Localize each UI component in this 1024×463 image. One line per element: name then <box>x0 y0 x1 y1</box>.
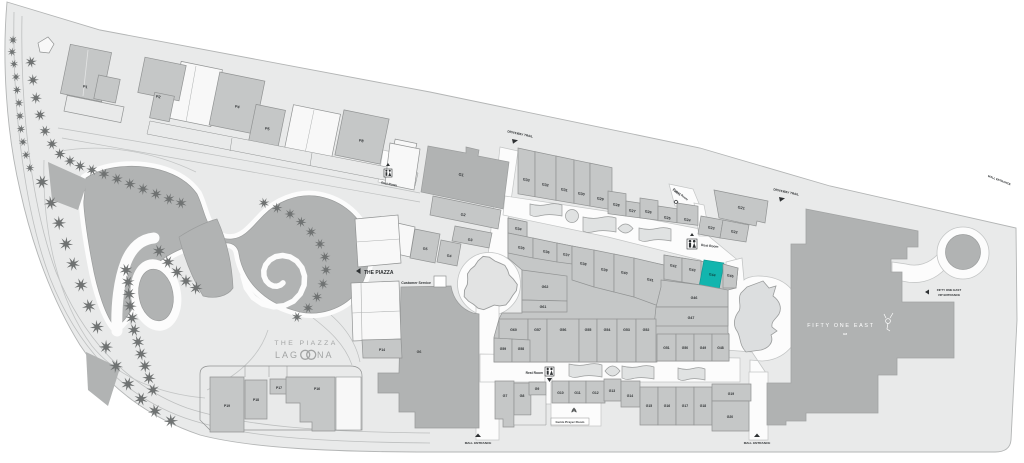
svg-text:G46: G46 <box>691 296 698 300</box>
svg-text:G19: G19 <box>728 392 735 396</box>
svg-text:THE PIAZZA: THE PIAZZA <box>364 270 394 276</box>
svg-text:G56: G56 <box>560 328 567 332</box>
svg-text:G48: G48 <box>717 346 724 350</box>
svg-text:G10: G10 <box>557 391 564 395</box>
svg-text:Gents Prayer Room: Gents Prayer Room <box>556 420 585 424</box>
svg-text:G9: G9 <box>535 387 540 391</box>
svg-text:LAG: LAG <box>275 350 299 360</box>
svg-text:FIFTY ONE EAST: FIFTY ONE EAST <box>937 288 962 292</box>
svg-text:G49: G49 <box>700 346 707 350</box>
svg-text:G60: G60 <box>510 328 517 332</box>
svg-text:FIFTY ONE EAST: FIFTY ONE EAST <box>807 323 874 329</box>
svg-text:G51: G51 <box>663 346 670 350</box>
svg-text:G5: G5 <box>422 247 427 252</box>
svg-text:G8: G8 <box>520 394 525 398</box>
svg-text:G52: G52 <box>643 328 650 332</box>
svg-text:G61: G61 <box>540 305 547 309</box>
svg-text:G14: G14 <box>627 394 634 398</box>
svg-text:G8: G8 <box>843 332 847 336</box>
svg-text:G13: G13 <box>609 389 616 393</box>
svg-text:G6: G6 <box>417 350 422 354</box>
svg-text:G12: G12 <box>592 391 599 395</box>
svg-text:G17: G17 <box>682 404 689 408</box>
svg-text:G15: G15 <box>646 404 653 408</box>
svg-text:G53: G53 <box>623 328 630 332</box>
svg-text:THE PIAZZA: THE PIAZZA <box>274 340 337 347</box>
svg-text:G3: G3 <box>467 238 472 243</box>
svg-text:Customer Service: Customer Service <box>401 281 431 285</box>
svg-text:G47: G47 <box>688 316 695 320</box>
svg-text:G11: G11 <box>574 391 580 395</box>
svg-text:G50: G50 <box>682 346 689 350</box>
svg-text:P18: P18 <box>253 398 259 402</box>
svg-text:P14: P14 <box>379 348 385 352</box>
svg-text:MALL ENTRANCE: MALL ENTRANCE <box>465 441 492 445</box>
svg-text:G7: G7 <box>503 394 508 398</box>
svg-text:G58: G58 <box>518 347 525 351</box>
svg-text:P19: P19 <box>224 404 230 408</box>
svg-text:NA: NA <box>317 350 334 360</box>
svg-text:G18: G18 <box>700 404 707 408</box>
svg-text:P16: P16 <box>314 387 320 391</box>
svg-text:G2: G2 <box>460 213 466 218</box>
svg-text:G57: G57 <box>534 328 541 332</box>
svg-text:G59: G59 <box>500 347 507 351</box>
svg-text:VIP ENTRANCE: VIP ENTRANCE <box>938 293 960 297</box>
svg-text:MALL ENTRANCE: MALL ENTRANCE <box>744 441 771 445</box>
svg-text:G4: G4 <box>446 254 451 259</box>
svg-text:G16: G16 <box>664 404 671 408</box>
svg-text:P17: P17 <box>276 386 282 390</box>
svg-text:Rest Room: Rest Room <box>526 371 543 375</box>
svg-text:G55: G55 <box>585 328 592 332</box>
svg-text:G62: G62 <box>542 285 549 289</box>
svg-text:MALL ENTRANCE: MALL ENTRANCE <box>987 174 1011 186</box>
svg-text:G54: G54 <box>604 328 611 332</box>
svg-text:G20: G20 <box>727 415 734 419</box>
